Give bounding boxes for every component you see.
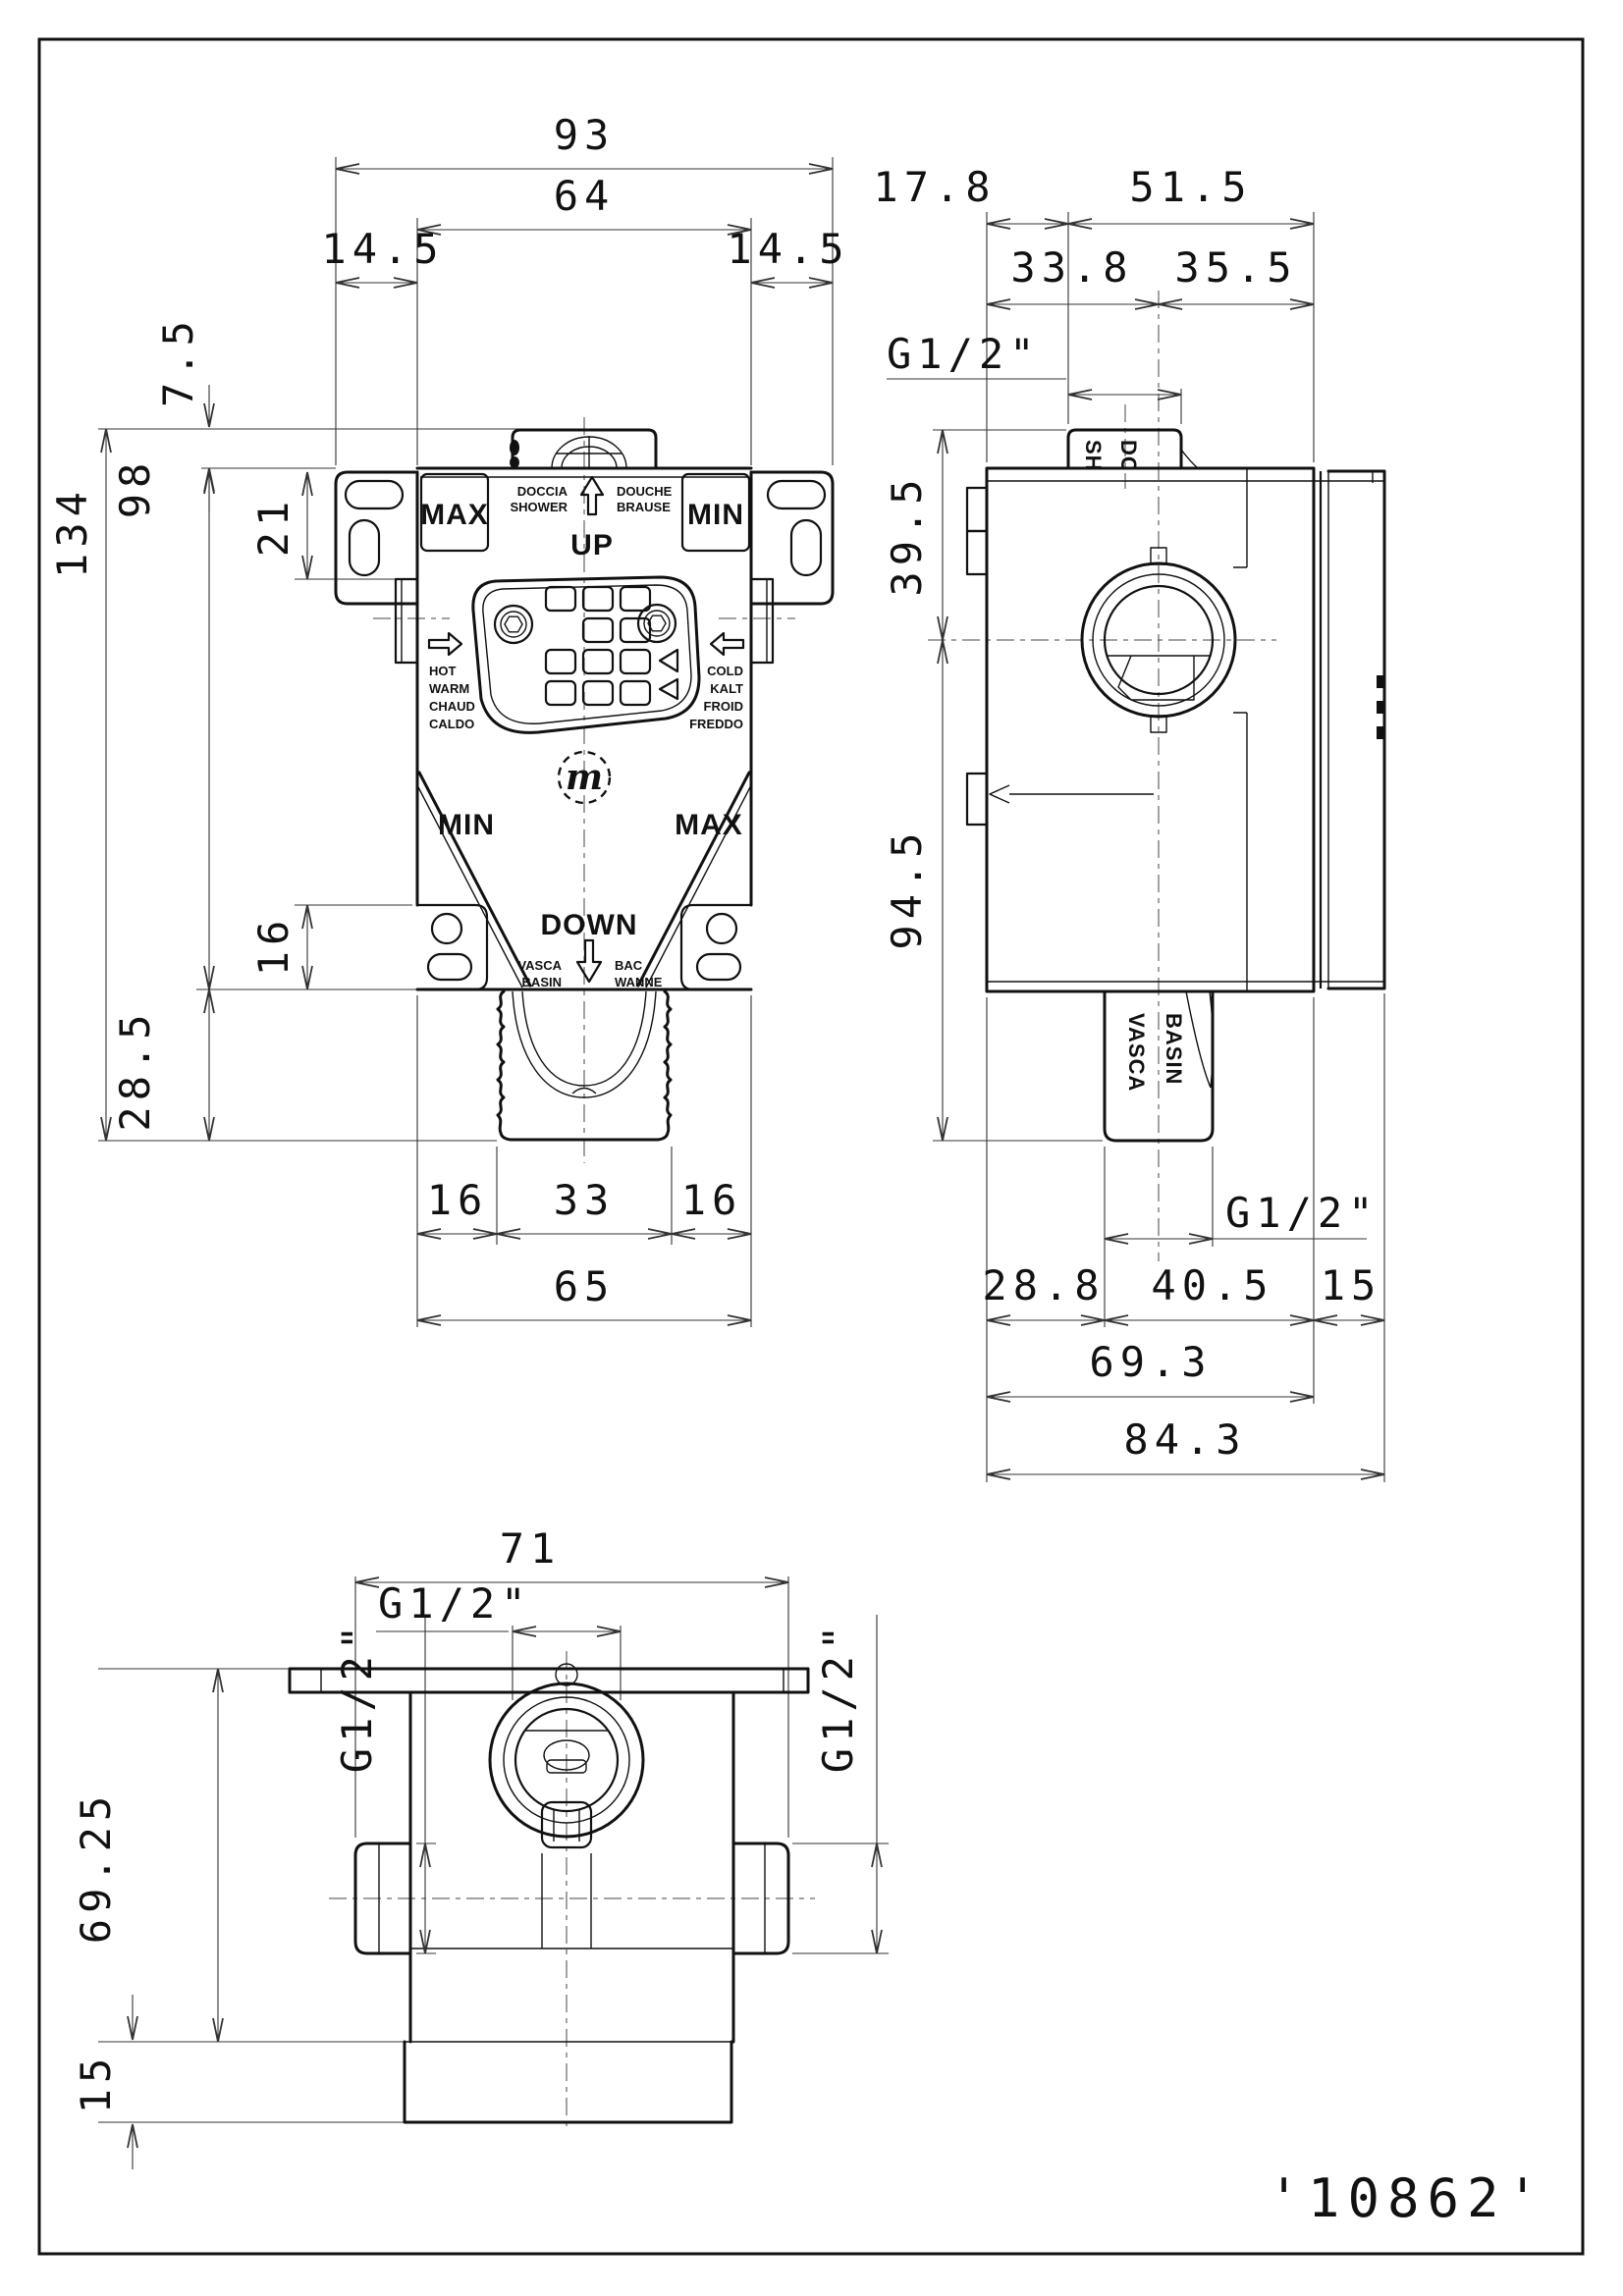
- label-up: UP: [570, 529, 614, 561]
- corner-tab-left: [417, 905, 487, 989]
- dim-side-outlet-offset: 28.8: [982, 1261, 1105, 1309]
- taper-edge-left: [419, 773, 530, 986]
- dim-front-bottom-width: 65: [554, 1262, 616, 1310]
- bottom-view: 71 G1/2" G1/2" G1/2" 69.25 15: [72, 1524, 889, 2169]
- dim-front-total-width: 93: [554, 111, 616, 159]
- label-side-doccia: DOCCIA: [1116, 440, 1141, 531]
- inlet-stub-left: [396, 579, 417, 663]
- dim-front-body-width: 64: [554, 172, 616, 220]
- extension-lines: [887, 212, 1384, 1482]
- dim-front-offset-right: 14.5: [727, 225, 849, 273]
- dim-side-outlet-wall: 40.5: [1151, 1261, 1273, 1309]
- dim-bottom-thread-left: G1/2": [333, 1620, 381, 1773]
- dim-bottom-base: 15: [72, 2053, 120, 2114]
- label-kalt: KALT: [710, 681, 743, 696]
- top-port-screw-dome: [552, 436, 626, 468]
- label-froid: FROID: [704, 699, 743, 714]
- dim-side-rear-depth: 51.5: [1129, 163, 1252, 211]
- dim-bottom-height: 69.25: [72, 1790, 120, 1944]
- part-number: '10862': [1268, 2167, 1546, 2229]
- corner-tab-right: [681, 905, 751, 989]
- dim-bottom-thread-center: G1/2": [378, 1579, 531, 1628]
- centerlines: [329, 1651, 815, 2132]
- dim-side-front-offset: 17.8: [873, 163, 996, 211]
- label-basin: BASIN: [522, 975, 562, 989]
- label-warm: WARM: [429, 681, 469, 696]
- dim-front-slot-depth: 21: [249, 496, 298, 558]
- dim-side-axis-wall: 35.5: [1174, 243, 1297, 292]
- label-down: DOWN: [541, 909, 638, 941]
- dim-front-outlet-left: 16: [427, 1176, 489, 1224]
- inlet-stub-right: [751, 579, 773, 663]
- label-shower: SHOWER: [511, 500, 568, 514]
- maker-logo: m: [566, 757, 603, 798]
- label-hot: HOT: [429, 664, 457, 678]
- side-view: SHOWER DOCCIA VASCA BASIN: [873, 163, 1385, 1482]
- label-freddo: FREDDO: [689, 717, 743, 731]
- up-arrow-icon: [581, 477, 603, 514]
- dim-front-outlet-right: 16: [681, 1176, 743, 1224]
- label-bac: BAC: [615, 958, 643, 973]
- dim-front-outlet-width: 33: [554, 1176, 616, 1224]
- technical-drawing: MAX MIN DOCCIA SHOWER DOUCHE BRAUSE UP H…: [0, 0, 1623, 2296]
- top-port-fillet: [1181, 450, 1198, 468]
- dim-front-total-height: 134: [48, 486, 96, 578]
- dim-side-thread-bottom: G1/2": [1225, 1189, 1379, 1237]
- dim-side-total-depth: 84.3: [1123, 1415, 1246, 1464]
- dim-side-plate-depth: 15: [1321, 1261, 1382, 1309]
- body-outline: [405, 1692, 733, 2122]
- label-douche: DOUCHE: [617, 484, 673, 499]
- mounting-tab-left: [336, 472, 417, 604]
- dim-side-top-height: 39.5: [883, 473, 931, 596]
- dim-front-corner-tab: 16: [249, 915, 298, 977]
- screw-dot: [510, 440, 519, 455]
- bottom-port-waterway: [1186, 991, 1213, 1088]
- label-vasca: VASCA: [517, 958, 562, 973]
- centerlines: [928, 291, 1276, 1261]
- label-side-vasca: VASCA: [1124, 1013, 1149, 1092]
- label-max-top: MAX: [420, 499, 489, 531]
- extension-lines: [98, 157, 833, 1327]
- dim-bottom-thread-right: G1/2": [814, 1620, 862, 1773]
- label-side-shower: SHOWER: [1081, 440, 1106, 543]
- tab-slot: [768, 481, 825, 508]
- body-inner-lines: [987, 468, 1384, 991]
- extension-lines: [98, 1576, 889, 2122]
- tab-slot: [791, 520, 821, 575]
- label-wanne: WANNE: [615, 975, 663, 989]
- label-chaud: CHAUD: [429, 699, 475, 714]
- body-inner-lines: [405, 1853, 733, 2042]
- label-doccia: DOCCIA: [517, 484, 568, 499]
- taper-edge-right: [638, 773, 749, 986]
- down-arrow-icon: [577, 940, 601, 982]
- screw-dot: [510, 456, 519, 468]
- tab-slot: [350, 520, 379, 575]
- mounting-plate: [1321, 471, 1385, 988]
- label-min-top: MIN: [687, 499, 744, 531]
- dim-front-bump-height: 7.5: [154, 315, 202, 407]
- dim-front-body-height: 98: [111, 457, 159, 519]
- front-view: MAX MIN DOCCIA SHOWER DOUCHE BRAUSE UP H…: [48, 111, 850, 1327]
- dim-front-outlet-height: 28.5: [111, 1008, 159, 1131]
- drawing-sheet: MAX MIN DOCCIA SHOWER DOUCHE BRAUSE UP H…: [0, 0, 1623, 2296]
- tab-slot: [346, 481, 403, 508]
- dim-side-bottom-height: 94.5: [883, 827, 931, 949]
- dim-side-thread-top: G1/2": [887, 330, 1040, 378]
- hot-arrow-icon: [429, 633, 461, 655]
- label-side-basin: BASIN: [1162, 1013, 1186, 1085]
- sheet-border: [39, 39, 1583, 2254]
- label-caldo: CALDO: [429, 717, 474, 731]
- dim-bottom-width: 71: [500, 1524, 562, 1573]
- dim-side-port-axis: 33.8: [1010, 243, 1133, 292]
- dim-front-offset-left: 14.5: [321, 225, 444, 273]
- dim-side-body-depth: 69.3: [1089, 1338, 1212, 1386]
- label-cold: COLD: [707, 664, 743, 678]
- cold-arrow-icon: [711, 633, 743, 655]
- label-max-bottom: MAX: [675, 809, 743, 841]
- flange-ticks: [321, 1669, 784, 1692]
- hex-socket-icon: [505, 616, 522, 632]
- label-brause: BRAUSE: [617, 500, 671, 514]
